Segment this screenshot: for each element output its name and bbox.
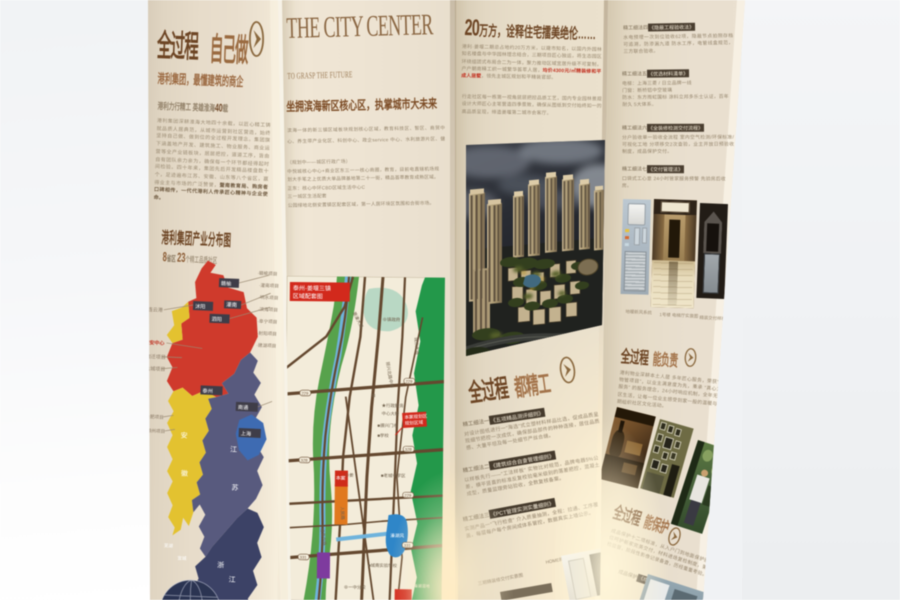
svg-text:·建湖项目: ·建湖项目	[256, 342, 276, 350]
svg-text:⊙姜: ⊙姜	[345, 472, 354, 478]
svg-text:·灌南项目: ·灌南项目	[259, 282, 279, 290]
svg-text:·阜宁项目: ·阜宁项目	[257, 318, 277, 326]
svg-text:徽: 徽	[181, 469, 188, 478]
svg-text:连云港: 连云港	[148, 306, 163, 314]
svg-text:·响水项目: ·响水项目	[258, 294, 278, 302]
svg-text:⊞: ⊞	[372, 393, 376, 398]
svg-text:331: 331	[300, 555, 308, 560]
svg-text:宣城: 宣城	[177, 555, 187, 562]
svg-text:江: 江	[230, 446, 237, 454]
svg-text:·滨海项目: ·滨海项目	[258, 306, 278, 314]
svg-text:江: 江	[228, 576, 235, 584]
svg-text:苏: 苏	[231, 483, 238, 492]
svg-text:·射阳项目: ·射阳项目	[257, 330, 277, 338]
svg-text:229: 229	[301, 391, 309, 396]
svg-text:浙: 浙	[217, 560, 224, 569]
svg-text:328: 328	[405, 447, 413, 452]
svg-text:芜湖: 芜湖	[164, 542, 174, 549]
svg-text:·赣榆项目: ·赣榆项目	[257, 270, 277, 278]
svg-text:安: 安	[180, 431, 187, 440]
svg-text:229: 229	[405, 379, 413, 384]
svg-text:328: 328	[301, 458, 309, 463]
